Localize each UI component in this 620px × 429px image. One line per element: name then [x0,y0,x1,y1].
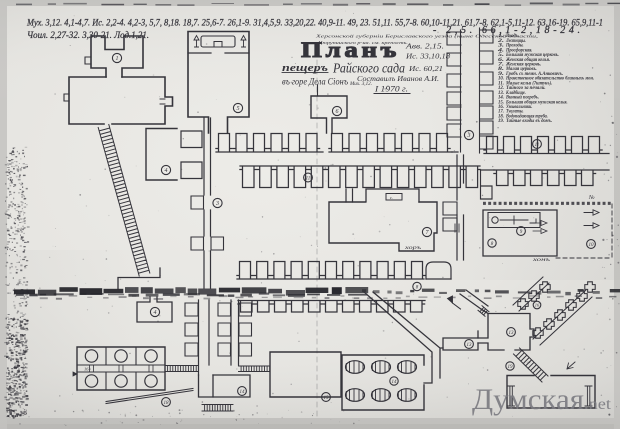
svg-text:19: 19 [508,365,514,370]
svg-text:І 1970 г.: І 1970 г. [374,85,408,94]
svg-text:Думская: Думская [472,384,584,416]
svg-text:с.: с. [390,195,393,200]
svg-text:Тайные входы въ домъ.: Тайные входы въ домъ. [506,118,552,124]
svg-text:3: 3 [467,133,471,139]
svg-text:Авв. 2,15.: Авв. 2,15. [405,42,444,51]
svg-text:хонъ: хонъ [531,257,550,263]
svg-text:Ис. 60,21: Ис. 60,21 [408,64,443,73]
svg-text:4: 4 [165,167,168,174]
svg-text:13: 13 [467,343,473,348]
svg-text:6: 6 [336,109,339,115]
svg-text:хоръ: хоръ [404,245,422,251]
svg-text:14: 14 [240,390,246,395]
svg-text:16: 16 [84,367,89,372]
svg-text:16: 16 [535,303,540,308]
svg-text:Планъ: Планъ [301,37,400,62]
svg-text:11: 11 [535,143,540,148]
svg-text:11: 11 [306,176,311,181]
svg-text:въ горе Дела Сіонъ: въ горе Дела Сіонъ [282,77,348,87]
svg-text:5: 5 [237,106,240,112]
svg-text:3: 3 [215,201,219,207]
svg-text:.net: .net [584,396,612,413]
svg-text:1: 1 [116,56,119,62]
svg-text:10: 10 [589,243,595,248]
svg-text:19.: 19. [498,119,504,124]
svg-text:18: 18 [164,401,170,406]
svg-text:Составилъ Иванов А.И.: Составилъ Иванов А.И. [357,74,439,83]
svg-text:4: 4 [154,309,157,316]
svg-text:Ис. 33,10,18: Ис. 33,10,18 [405,52,450,61]
svg-text:15: 15 [324,396,330,401]
svg-text:13: 13 [509,331,515,336]
svg-text:14: 14 [392,380,398,385]
svg-text:№: № [588,195,595,201]
